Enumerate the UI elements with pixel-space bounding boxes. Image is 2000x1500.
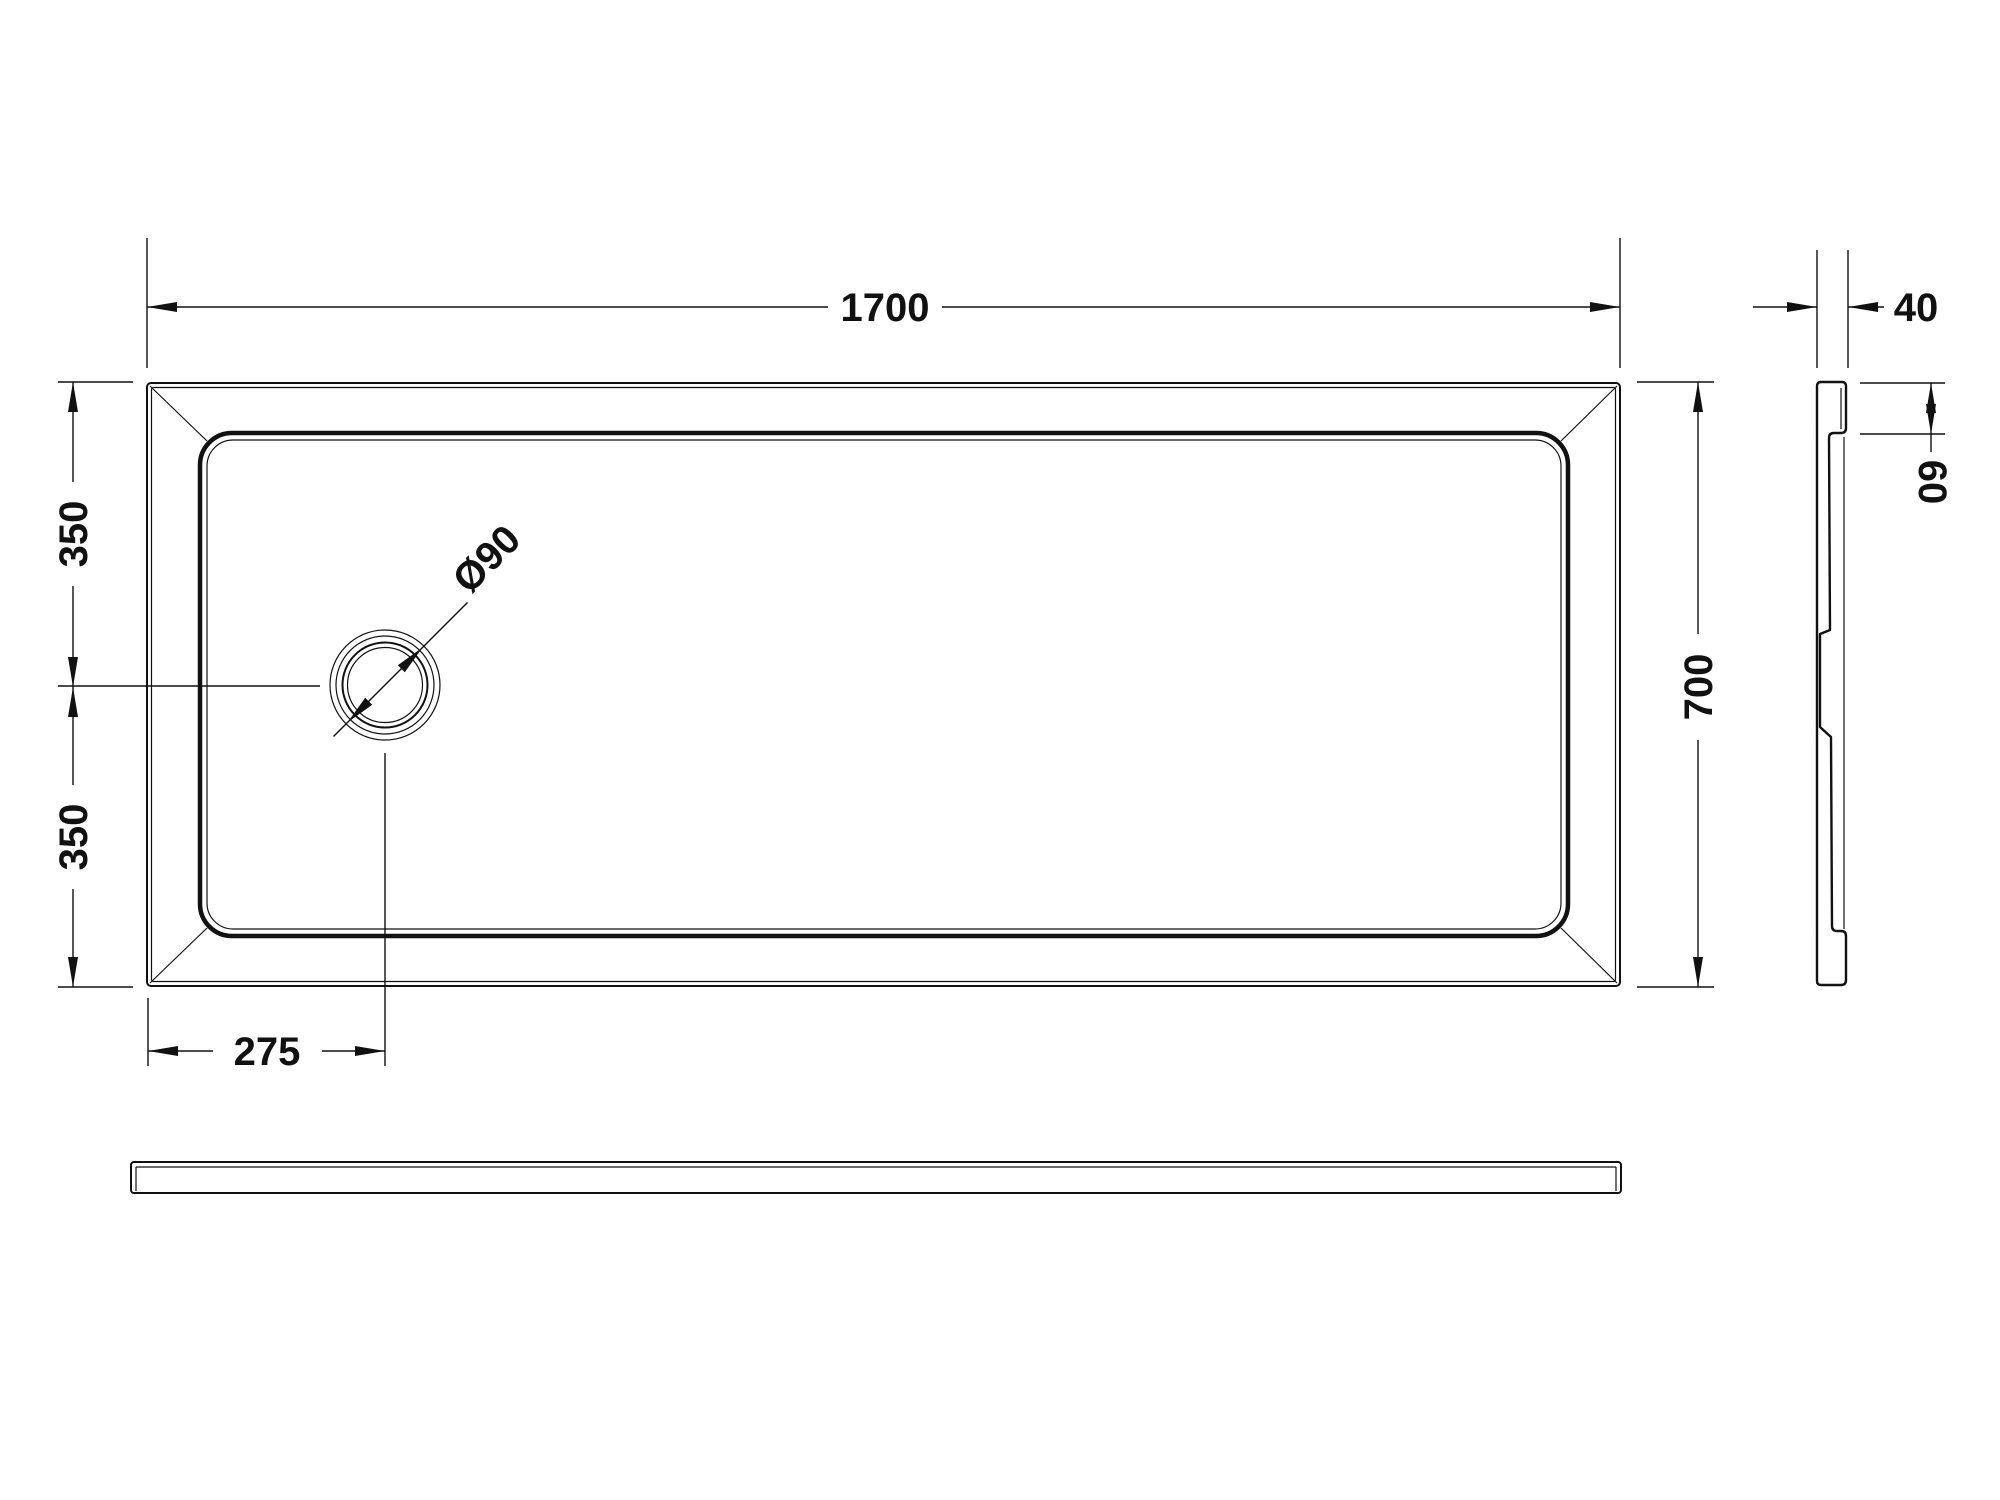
- arrowhead: [1693, 382, 1703, 412]
- dim-width: 700: [1637, 382, 1721, 987]
- dim-text-drain-from-top: 350: [52, 501, 96, 568]
- dim-drain-from-top: 350: [52, 382, 133, 687]
- arrowhead: [1787, 302, 1817, 312]
- dim-text-drain-diameter: Ø90: [445, 517, 530, 602]
- technical-drawing-canvas: 1700 40 60 700 350: [0, 0, 2000, 1500]
- tray-outer-edge: [147, 383, 1620, 986]
- dim-rim-depth: 60: [1860, 383, 1954, 504]
- dim-text-thickness: 40: [1894, 286, 1939, 330]
- arrowhead: [1848, 302, 1878, 312]
- basin-inner-line: [207, 440, 1561, 929]
- dim-drain-from-left: 275: [148, 998, 385, 1074]
- side-profile-outline: [1817, 382, 1846, 985]
- dim-text-drain-from-bottom: 350: [52, 804, 96, 871]
- plan-view: [58, 383, 1620, 1066]
- dim-thickness: 40: [1753, 250, 1938, 368]
- arrowhead: [1590, 302, 1620, 312]
- arrowhead: [355, 1046, 385, 1056]
- side-view: [1817, 382, 1846, 985]
- dim-drain-from-bottom: 350: [52, 687, 133, 987]
- arrowhead: [68, 382, 78, 412]
- basin-outline: [200, 433, 1568, 936]
- arrowhead: [147, 302, 177, 312]
- dim-drain-diameter: Ø90: [334, 517, 530, 736]
- dim-text-rim-depth: 60: [1910, 460, 1954, 505]
- dim-text-length: 1700: [841, 286, 930, 330]
- arrowhead: [1926, 404, 1936, 434]
- arrowhead: [1693, 957, 1703, 987]
- drawing-sheet: 1700 40 60 700 350: [0, 0, 2000, 1500]
- dim-text-drain-from-left: 275: [234, 1030, 301, 1074]
- corner-line-top-right: [1561, 386, 1617, 441]
- dim-text-width: 700: [1677, 654, 1721, 721]
- corner-line-bottom-right: [1561, 928, 1617, 983]
- corner-line-top-left: [150, 386, 207, 441]
- tray-outer-edge-inner-line: [152, 388, 1616, 982]
- dim-length: 1700: [147, 238, 1620, 368]
- arrowhead: [148, 1046, 178, 1056]
- arrowhead: [68, 957, 78, 987]
- front-view: [131, 1162, 1621, 1193]
- arrowhead: [68, 687, 78, 717]
- corner-line-bottom-left: [150, 928, 207, 983]
- arrowhead: [68, 657, 78, 687]
